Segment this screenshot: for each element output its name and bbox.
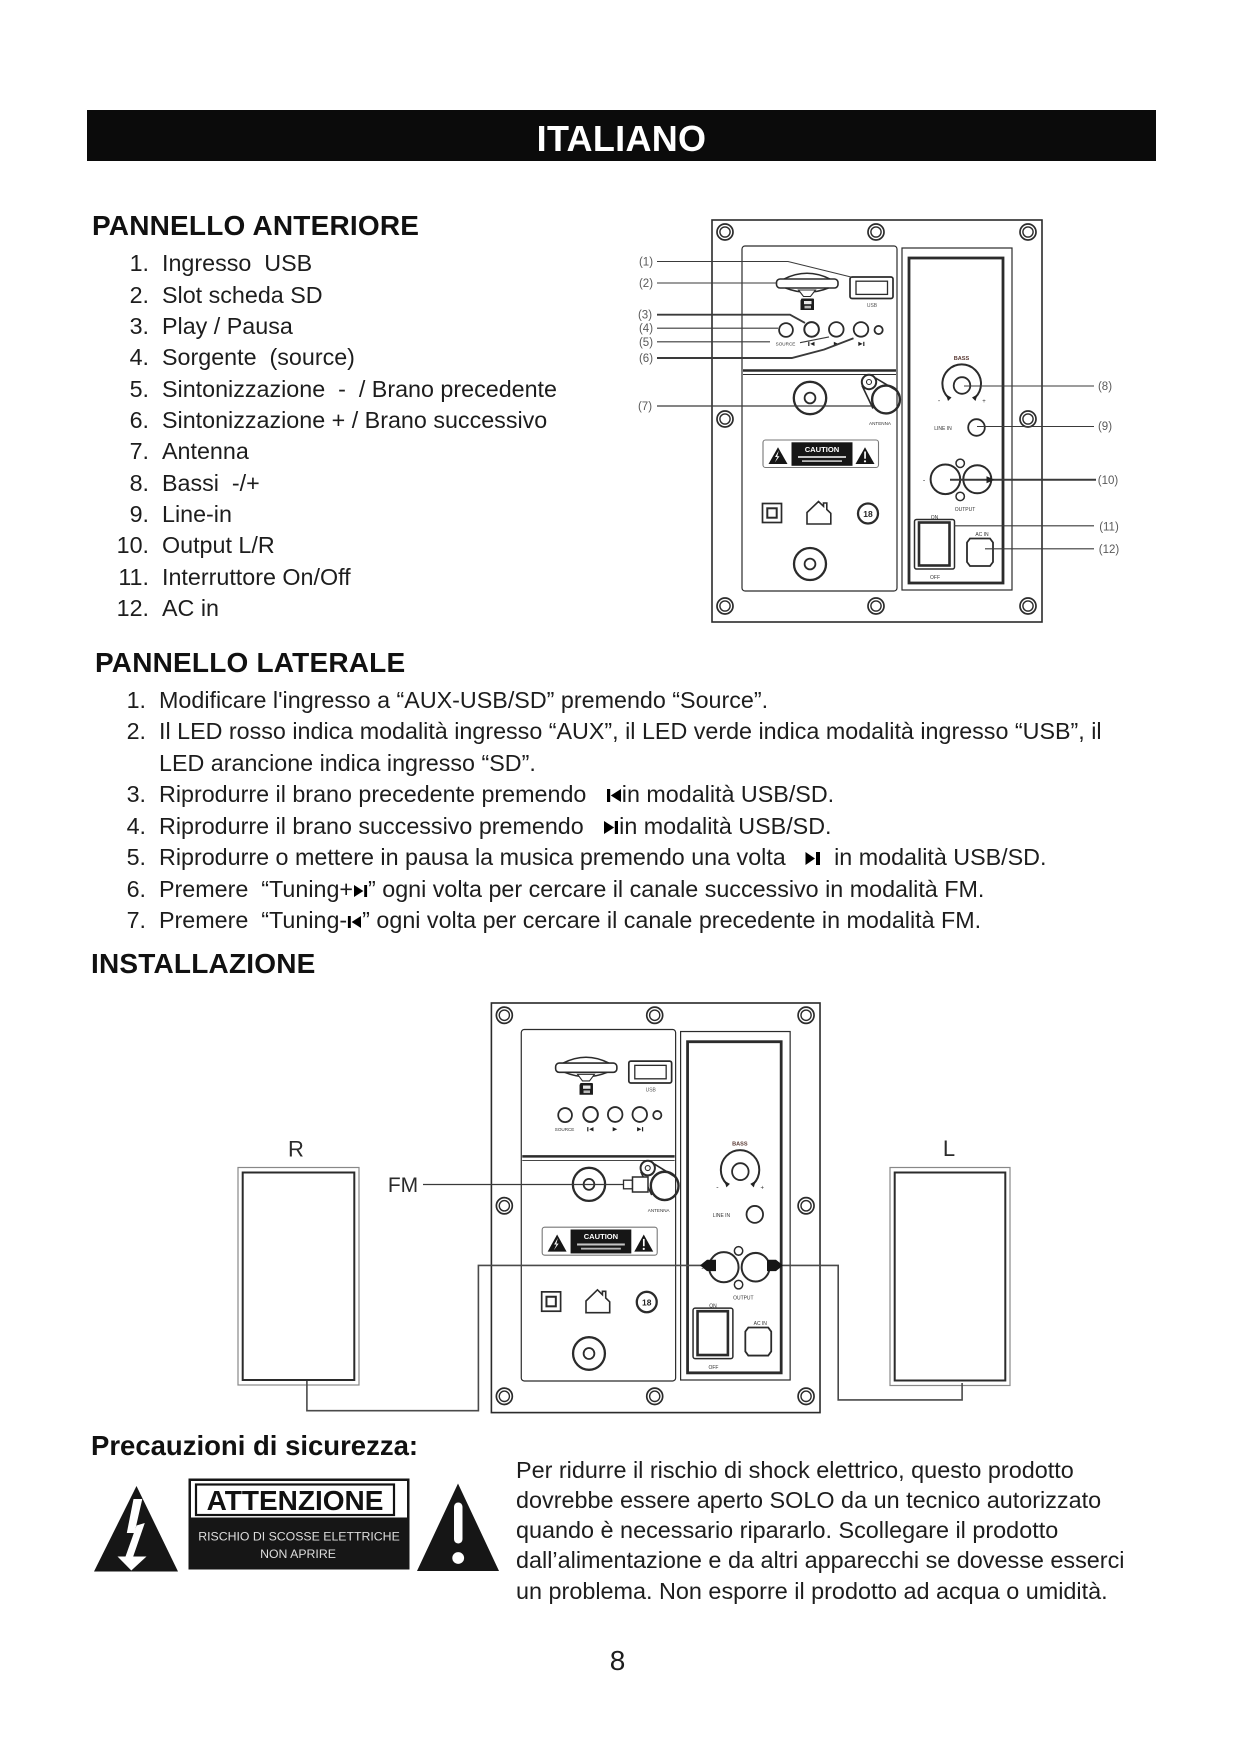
svg-text:(1): (1) — [639, 257, 653, 269]
svg-text:RISCHIO DI SCOSSE ELETTRICHE: RISCHIO DI SCOSSE ELETTRICHE — [198, 1530, 400, 1544]
svg-text:R: R — [288, 1137, 304, 1162]
svg-text:(2): (2) — [639, 278, 653, 290]
svg-text:FM: FM — [388, 1174, 418, 1197]
svg-text:(4): (4) — [639, 323, 653, 335]
svg-text:(5): (5) — [639, 337, 653, 349]
svg-text:(11): (11) — [1099, 521, 1119, 533]
svg-text:ATTENZIONE: ATTENZIONE — [207, 1485, 384, 1516]
svg-text:(6): (6) — [639, 353, 653, 365]
svg-text:NON APRIRE: NON APRIRE — [260, 1547, 336, 1561]
svg-text:(10): (10) — [1098, 475, 1119, 487]
svg-text:L: L — [943, 1136, 955, 1161]
svg-text:(12): (12) — [1099, 544, 1120, 556]
svg-text:(3): (3) — [638, 310, 652, 322]
svg-text:(9): (9) — [1098, 421, 1112, 433]
svg-text:(8): (8) — [1098, 381, 1112, 393]
svg-text:(7): (7) — [638, 401, 652, 413]
